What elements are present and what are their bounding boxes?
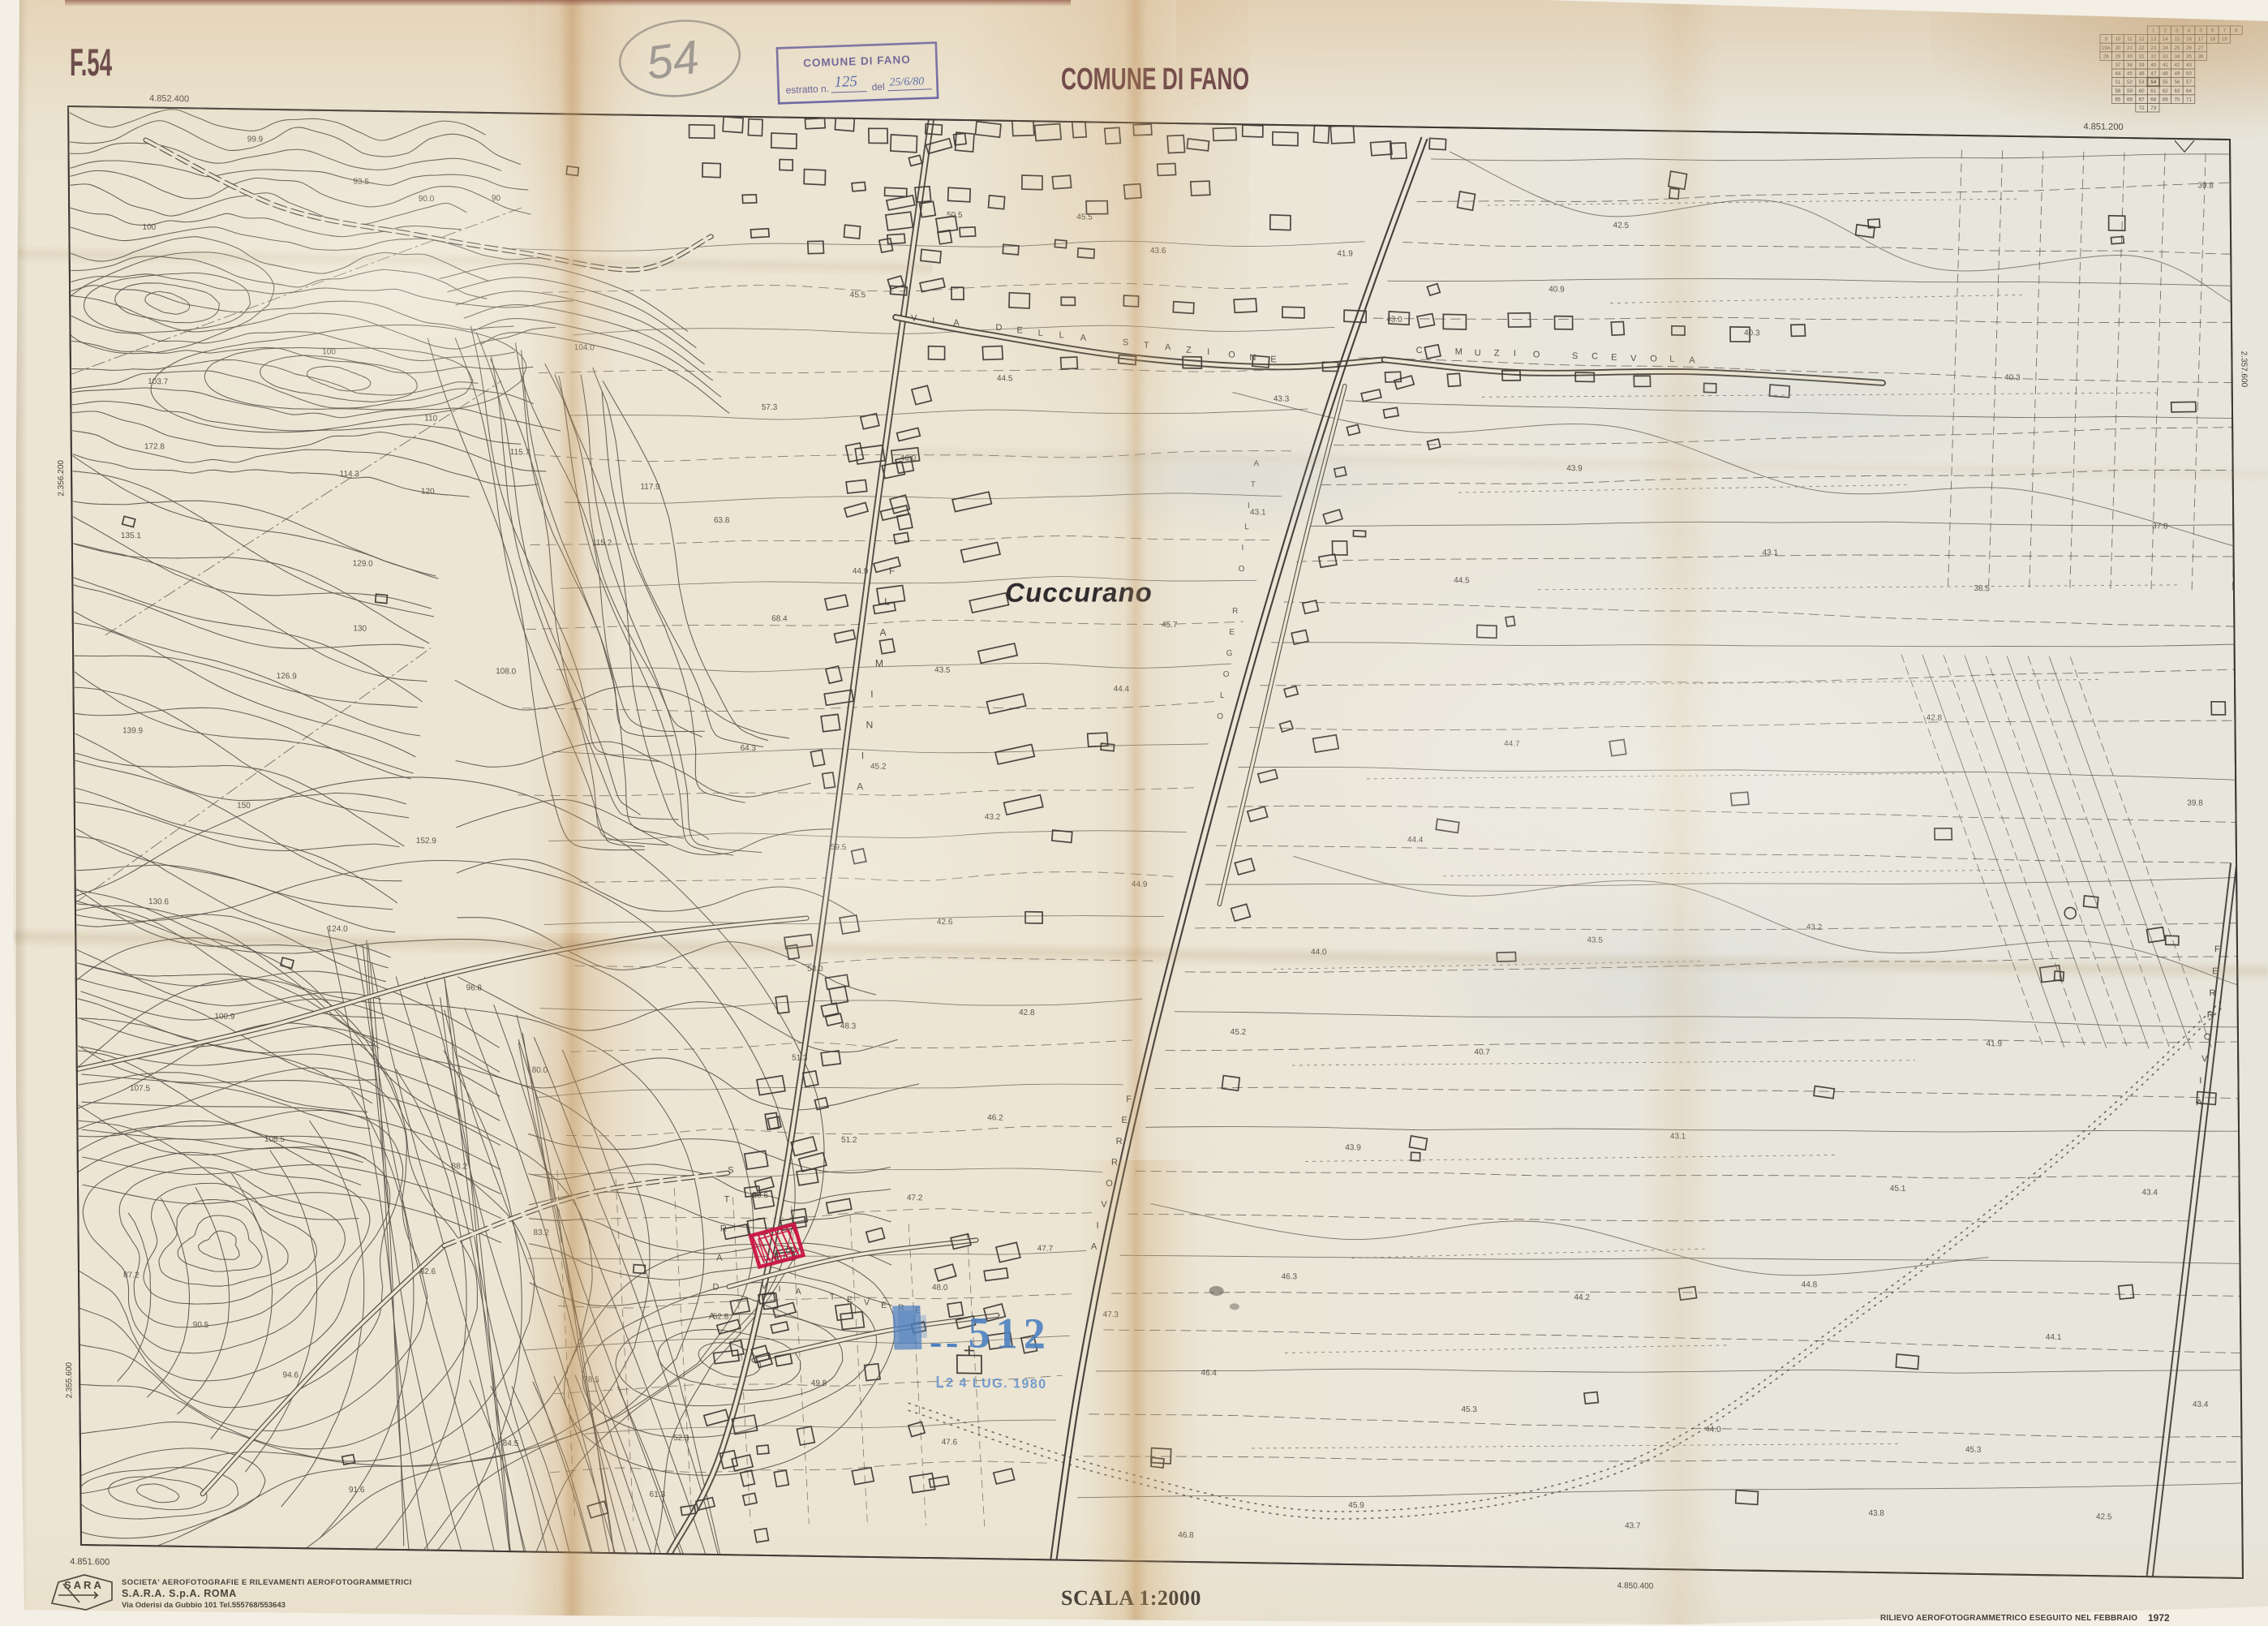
svg-text:1972: 1972 (2148, 1612, 2170, 1624)
